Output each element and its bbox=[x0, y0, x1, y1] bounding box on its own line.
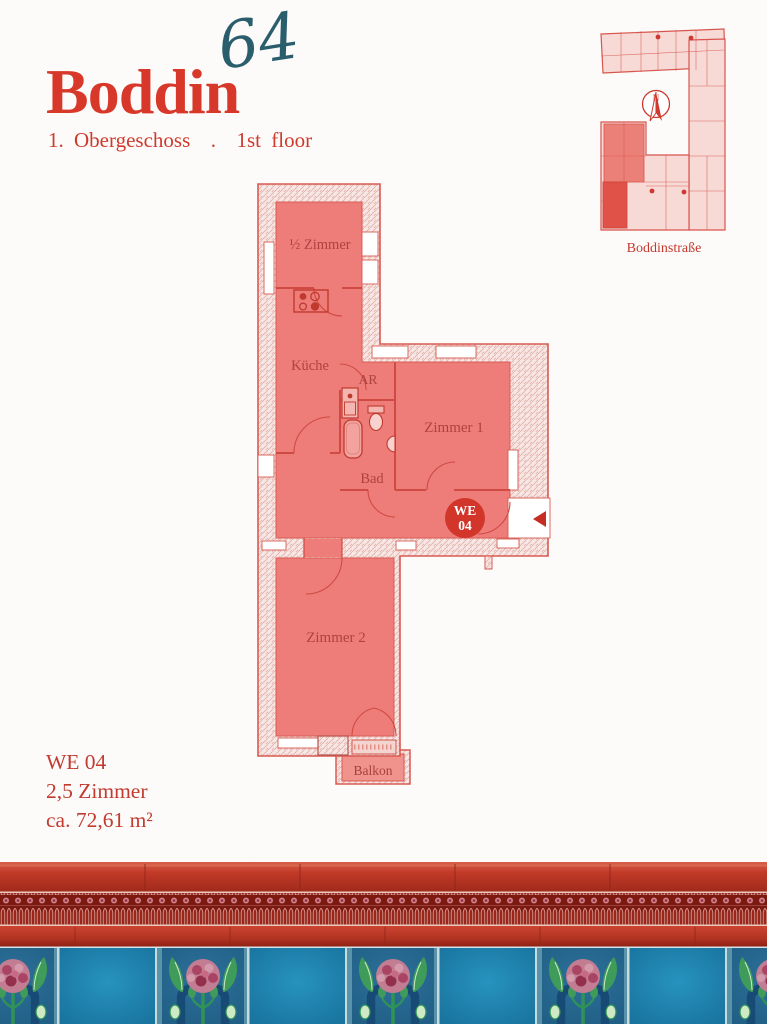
logo-number: 64 bbox=[213, 4, 303, 80]
tile-frieze bbox=[0, 893, 767, 925]
info-area: ca. 72,61 m² bbox=[46, 806, 153, 835]
building-overview-svg: N Boddinstraße bbox=[596, 26, 736, 260]
brochure-page: Boddin 64 1. Obergeschoss . 1st floor bbox=[0, 0, 767, 1024]
apartment-highlight-lower bbox=[603, 182, 627, 228]
unit-badge-bottom: 04 bbox=[458, 518, 472, 533]
floor-plan: WE 04 ½ Zimmer Küche AR Zimmer 1 Bad Zim… bbox=[256, 180, 552, 792]
tile-red-strip bbox=[0, 926, 767, 947]
building-overview-map: N Boddinstraße bbox=[596, 26, 736, 260]
floor-plan-svg: WE 04 ½ Zimmer Küche AR Zimmer 1 Bad Zim… bbox=[256, 180, 552, 792]
tile-photo-band bbox=[0, 862, 767, 1024]
room-label-room1: Zimmer 1 bbox=[424, 420, 484, 436]
toilet-icon bbox=[368, 406, 384, 431]
room-label-kitchen: Küche bbox=[291, 358, 329, 374]
logo-text: Boddin bbox=[46, 60, 239, 124]
room-label-bath: Bad bbox=[360, 471, 384, 487]
room-label-storage: AR bbox=[359, 372, 378, 387]
window-sill bbox=[318, 736, 348, 755]
info-unit: WE 04 bbox=[46, 748, 153, 777]
info-room-count: 2,5 Zimmer bbox=[46, 777, 153, 806]
compass-icon: N bbox=[643, 91, 670, 122]
room-label-half-room: ½ Zimmer bbox=[289, 237, 350, 253]
compass-north-label: N bbox=[653, 93, 660, 103]
unit-badge: WE 04 bbox=[445, 498, 485, 538]
bathtub-icon bbox=[344, 420, 362, 458]
room-label-room2: Zimmer 2 bbox=[306, 630, 366, 646]
apartment-area-room2 bbox=[276, 558, 394, 736]
tile-blue-row bbox=[0, 948, 767, 1024]
unit-badge-top: WE bbox=[454, 503, 477, 518]
wall-stub bbox=[485, 556, 492, 569]
street-label: Boddinstraße bbox=[627, 241, 702, 256]
floor-subtitle: 1. Obergeschoss . 1st floor bbox=[48, 128, 312, 153]
kitchen-sink-icon bbox=[342, 388, 358, 418]
grout-line bbox=[0, 892, 767, 894]
grout-line bbox=[0, 925, 767, 927]
room-label-balcony: Balkon bbox=[354, 763, 393, 778]
tile-band-svg bbox=[0, 862, 767, 1024]
tile-red-molding bbox=[0, 862, 767, 892]
apartment-info: WE 04 2,5 Zimmer ca. 72,61 m² bbox=[46, 748, 153, 834]
